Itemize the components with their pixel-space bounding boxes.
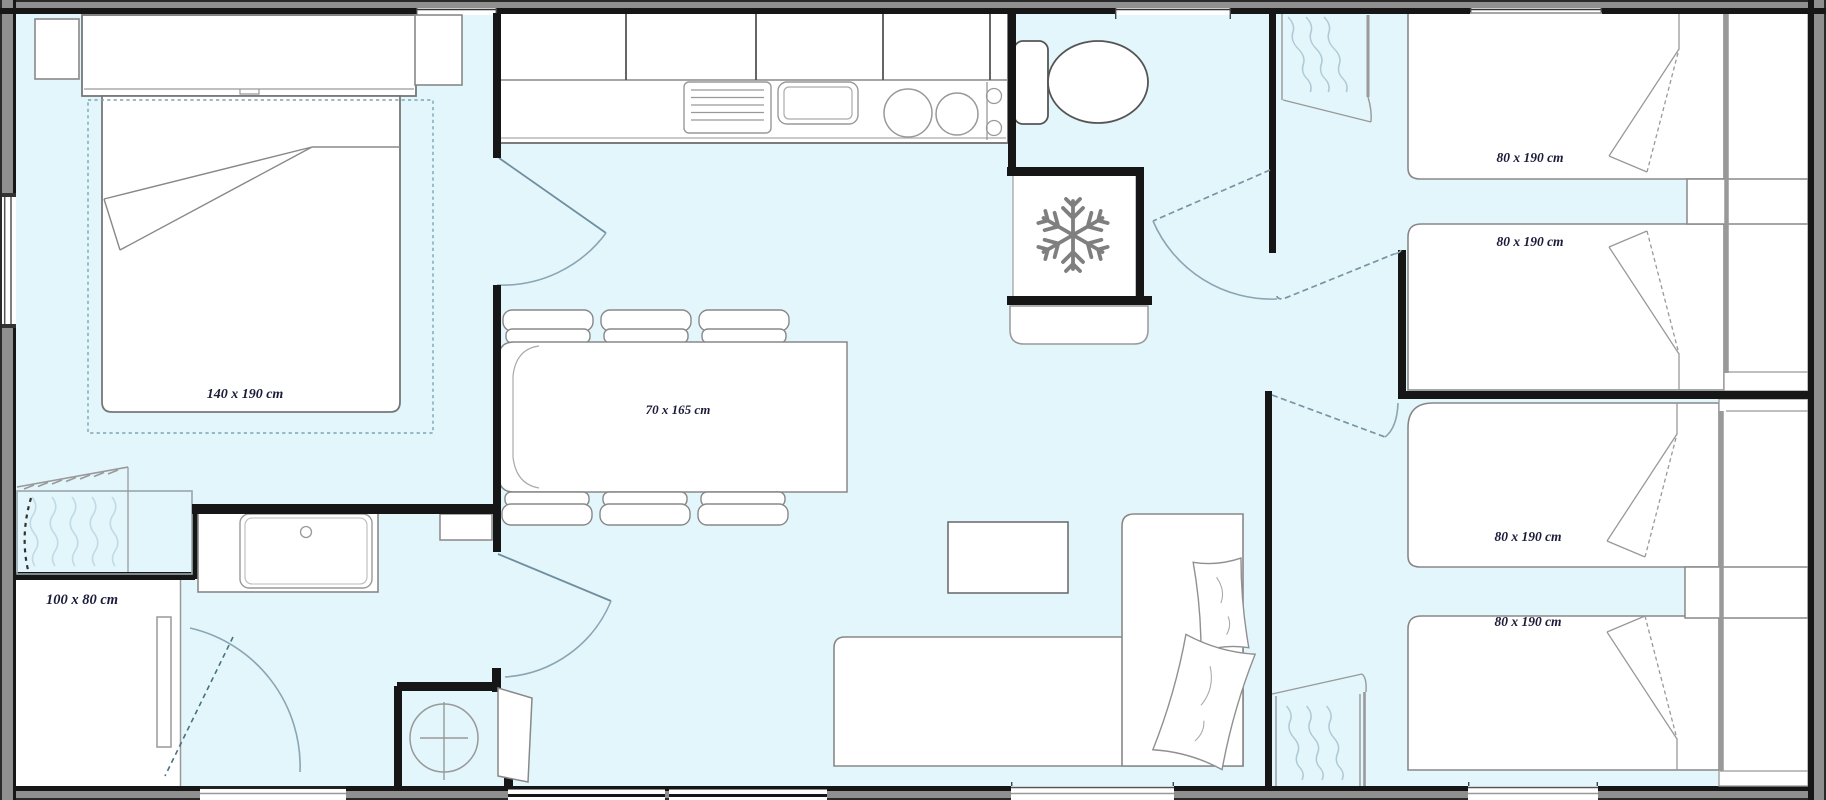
svg-text:80 x 190 cm: 80 x 190 cm [1494, 529, 1561, 544]
svg-text:140 x 190 cm: 140 x 190 cm [207, 387, 284, 402]
svg-text:80 x 190 cm: 80 x 190 cm [1496, 234, 1563, 249]
svg-text:80 x 190 cm: 80 x 190 cm [1496, 150, 1563, 165]
svg-text:70 x 165 cm: 70 x 165 cm [646, 402, 711, 417]
svg-text:80 x 190 cm: 80 x 190 cm [1494, 614, 1561, 629]
svg-text:100 x 80 cm: 100 x 80 cm [46, 592, 118, 608]
